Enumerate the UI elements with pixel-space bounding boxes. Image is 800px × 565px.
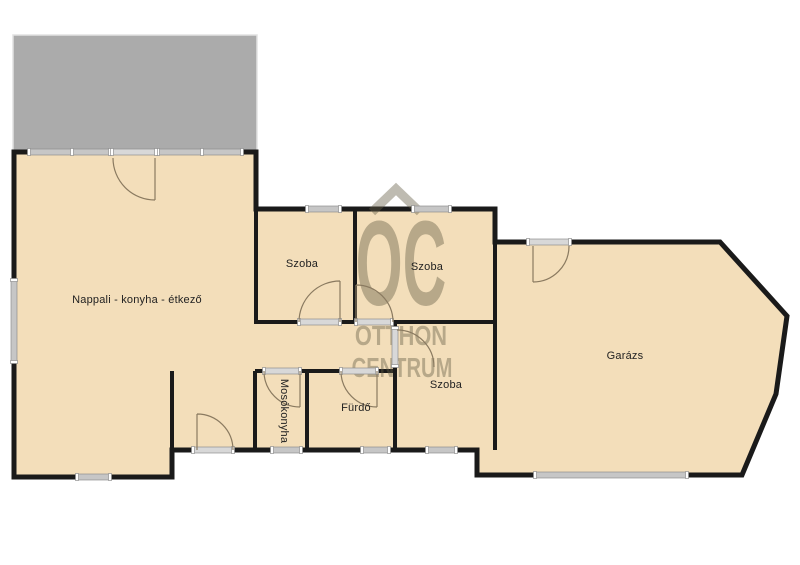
window xyxy=(426,447,458,454)
floorplan-canvas: OC OTTHON CENTRUM xyxy=(0,0,800,565)
floorplan-drawing: OC OTTHON CENTRUM xyxy=(0,0,800,565)
door xyxy=(355,319,394,326)
window xyxy=(157,149,244,156)
door xyxy=(527,239,572,246)
door xyxy=(298,319,342,326)
garage-door xyxy=(534,472,689,479)
room-label-room3: Szoba xyxy=(430,379,462,391)
window xyxy=(28,149,112,156)
window xyxy=(271,447,303,454)
window xyxy=(76,474,112,481)
room-label-garage: Garázs xyxy=(607,350,644,362)
door xyxy=(340,368,379,375)
room-label-living: Nappali - konyha - étkező xyxy=(72,294,202,306)
room-label-room2: Szoba xyxy=(411,261,443,273)
window xyxy=(11,279,18,364)
window xyxy=(361,447,391,454)
window xyxy=(306,206,342,213)
room-label-room1: Szoba xyxy=(286,258,318,270)
door xyxy=(263,368,302,375)
room-label-bath: Fürdő xyxy=(341,402,371,414)
terrace-slab xyxy=(13,35,257,153)
room-label-laundry: Mosókonyha xyxy=(278,379,290,443)
door xyxy=(392,327,399,368)
window xyxy=(412,206,452,213)
entrance-door xyxy=(192,447,235,454)
door xyxy=(111,149,158,156)
